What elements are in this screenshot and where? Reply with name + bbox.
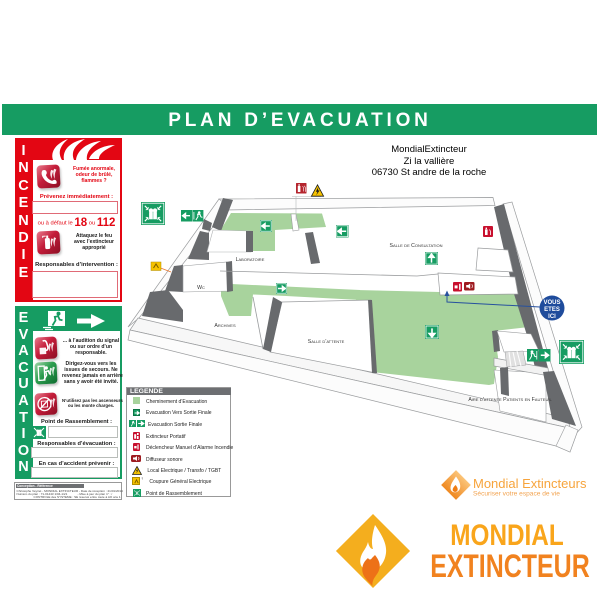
svg-text:Mondial Extincteurs: Mondial Extincteurs: [473, 476, 587, 491]
svg-text:Salle d'attente: Salle d'attente: [308, 339, 345, 345]
svg-text:Salle de Consultation: Salle de Consultation: [390, 243, 443, 249]
svg-text:Wc: Wc: [197, 285, 205, 291]
svg-text:ICI: ICI: [548, 314, 556, 320]
svg-text:VOUS: VOUS: [543, 300, 560, 306]
svg-text:Aire d'attente Patients en Fau: Aire d'attente Patients en Fauteuil: [468, 397, 552, 403]
svg-text:Archives: Archives: [214, 323, 236, 329]
svg-text:ETES: ETES: [544, 307, 560, 313]
svg-text:Laboratoire: Laboratoire: [236, 257, 265, 263]
svg-text:Sécuriser votre espace de vie: Sécuriser votre espace de vie: [473, 491, 560, 498]
